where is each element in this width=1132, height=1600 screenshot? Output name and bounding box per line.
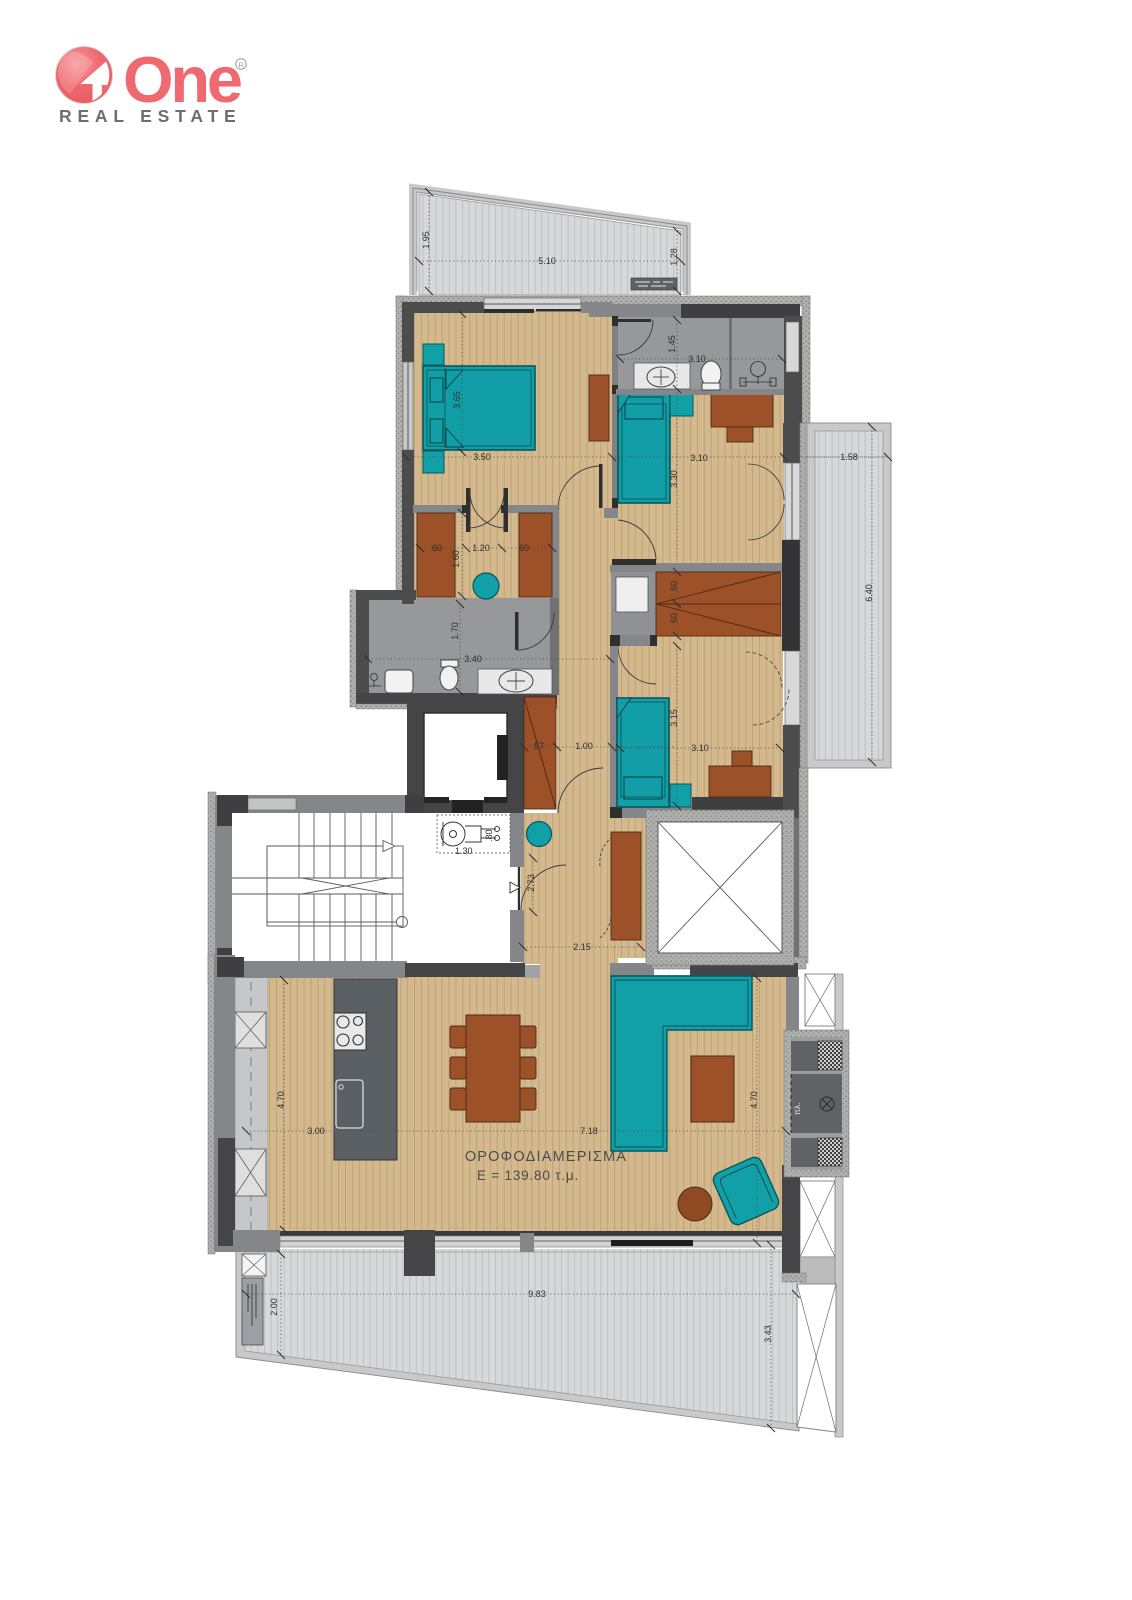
svg-text:4.70: 4.70 bbox=[749, 1091, 759, 1109]
svg-text:2.73: 2.73 bbox=[526, 874, 536, 892]
svg-text:3.10: 3.10 bbox=[691, 743, 709, 753]
svg-text:R: R bbox=[239, 61, 245, 70]
svg-text:1.58: 1.58 bbox=[840, 452, 858, 462]
svg-text:3.40: 3.40 bbox=[464, 654, 482, 664]
svg-text:6.40: 6.40 bbox=[864, 584, 874, 602]
svg-text:1.45: 1.45 bbox=[667, 335, 677, 353]
svg-text:πλ.: πλ. bbox=[792, 1103, 802, 1115]
svg-text:9.83: 9.83 bbox=[528, 1289, 546, 1299]
svg-text:3.65: 3.65 bbox=[452, 391, 462, 409]
svg-text:.80: .80 bbox=[484, 829, 494, 842]
svg-text:1.28: 1.28 bbox=[669, 248, 679, 266]
svg-text:2.15: 2.15 bbox=[573, 942, 591, 952]
svg-text:3.10: 3.10 bbox=[688, 354, 706, 364]
svg-text:60: 60 bbox=[669, 613, 679, 623]
svg-text:REAL ESTATE: REAL ESTATE bbox=[59, 106, 241, 126]
svg-text:2.00: 2.00 bbox=[269, 1298, 279, 1316]
svg-text:1.70: 1.70 bbox=[450, 622, 460, 640]
svg-text:ΟΡΟΦΟΔΙΑΜΕΡΙΣΜΑ: ΟΡΟΦΟΔΙΑΜΕΡΙΣΜΑ bbox=[465, 1149, 627, 1165]
svg-text:3.30: 3.30 bbox=[669, 470, 679, 488]
svg-text:7.18: 7.18 bbox=[580, 1126, 598, 1136]
svg-text:Ε = 139.80 τ.μ.: Ε = 139.80 τ.μ. bbox=[477, 1168, 579, 1183]
svg-text:3.00: 3.00 bbox=[307, 1126, 325, 1136]
svg-text:60: 60 bbox=[519, 543, 529, 553]
svg-text:3.43: 3.43 bbox=[763, 1325, 773, 1343]
svg-text:1.60: 1.60 bbox=[451, 550, 461, 568]
svg-text:60: 60 bbox=[669, 581, 679, 591]
svg-text:4.70: 4.70 bbox=[276, 1091, 286, 1109]
svg-text:3.10: 3.10 bbox=[690, 453, 708, 463]
svg-text:1.20: 1.20 bbox=[472, 543, 490, 553]
svg-text:3.50: 3.50 bbox=[473, 452, 491, 462]
svg-text:3.15: 3.15 bbox=[669, 709, 679, 727]
svg-text:1.30: 1.30 bbox=[455, 846, 473, 856]
svg-text:60: 60 bbox=[432, 543, 442, 553]
svg-text:1.95: 1.95 bbox=[421, 231, 431, 249]
svg-text:57: 57 bbox=[534, 741, 544, 751]
svg-text:1.00: 1.00 bbox=[575, 741, 593, 751]
svg-text:5.10: 5.10 bbox=[538, 256, 556, 266]
